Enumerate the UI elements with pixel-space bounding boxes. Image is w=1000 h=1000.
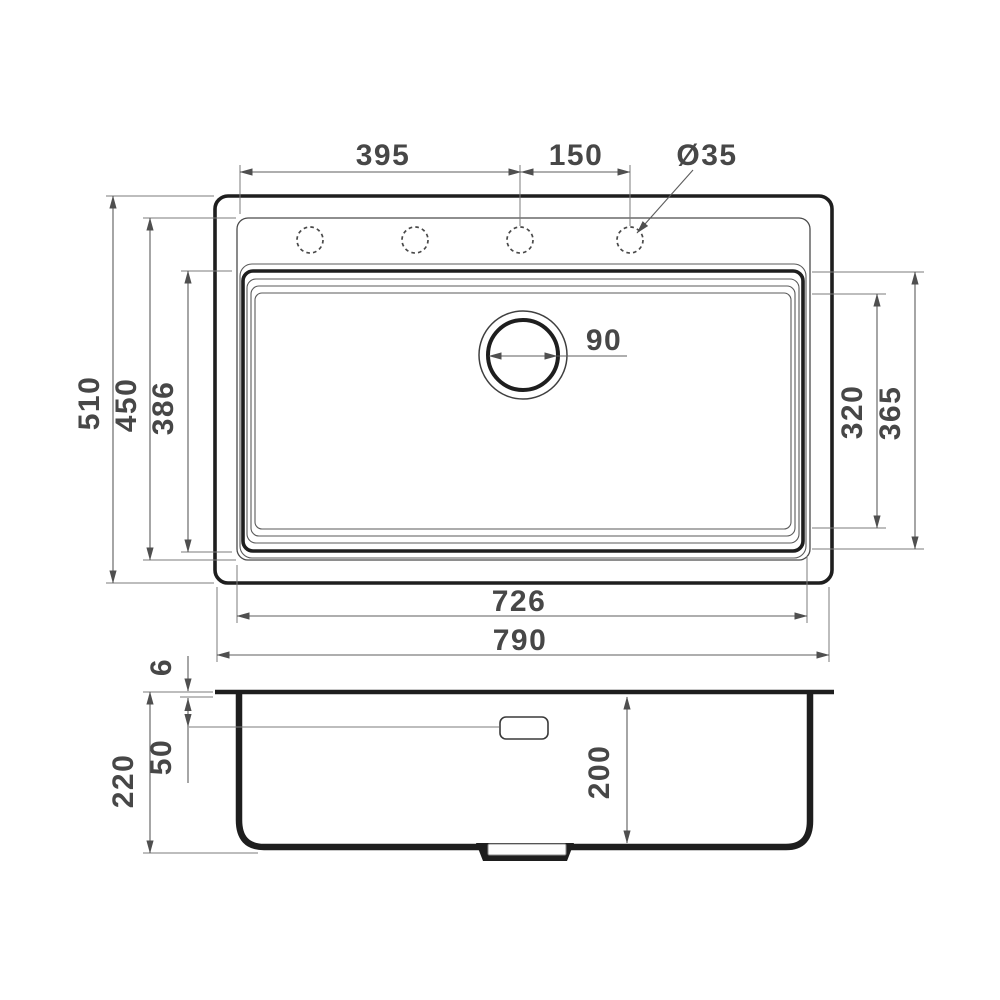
hole-span-label: 395 bbox=[356, 139, 411, 172]
dimensions-top: 395 150 Ø35 bbox=[240, 139, 738, 233]
bowl-outer-width-label: 365 bbox=[874, 386, 907, 441]
overall-height-label: 510 bbox=[73, 376, 106, 431]
bowl-height-label: 386 bbox=[147, 381, 180, 436]
drain-outer-circle bbox=[479, 311, 567, 399]
dimensions-section: 6 50 220 200 bbox=[107, 656, 627, 853]
bowl-step-1 bbox=[240, 264, 806, 558]
faucet-holes bbox=[297, 227, 643, 253]
bowl-outline bbox=[240, 264, 806, 558]
hole-diameter-leader bbox=[637, 170, 693, 233]
section-view bbox=[189, 692, 834, 861]
drain-diameter-label: 90 bbox=[586, 324, 622, 357]
deck-height-label: 450 bbox=[110, 378, 143, 433]
overall-length-label: 790 bbox=[493, 624, 548, 657]
overall-depth-label: 220 bbox=[107, 754, 140, 809]
dimensions-left: 510 450 386 bbox=[73, 196, 236, 583]
section-drain-slot bbox=[488, 844, 566, 855]
drain-inner-circle bbox=[488, 320, 558, 390]
drawing-canvas: 90 395 150 Ø35 510 450 386 320 bbox=[0, 0, 1000, 1000]
top-view: 90 bbox=[215, 196, 832, 583]
faucet-hole-3 bbox=[507, 227, 533, 253]
bowl-main-edge bbox=[243, 271, 803, 551]
hole-pitch-label: 150 bbox=[549, 139, 604, 172]
bowl-length-label: 726 bbox=[492, 585, 547, 618]
dimensions-right: 320 365 bbox=[812, 272, 924, 549]
bowl-inner-width-label: 320 bbox=[836, 385, 869, 440]
bowl-step-3 bbox=[251, 286, 795, 536]
bowl-step-4 bbox=[255, 293, 791, 529]
sink-technical-drawing: 90 395 150 Ø35 510 450 386 320 bbox=[0, 0, 1000, 1000]
bowl-depth-label: 200 bbox=[583, 745, 616, 800]
faucet-hole-2 bbox=[402, 227, 428, 253]
faucet-hole-1 bbox=[297, 227, 323, 253]
drain: 90 bbox=[479, 311, 627, 399]
section-overflow-hole bbox=[500, 717, 548, 739]
rim-thickness-label: 6 bbox=[145, 658, 178, 676]
section-bowl-walls bbox=[239, 693, 810, 847]
hole-diameter-label: Ø35 bbox=[676, 139, 737, 172]
dimensions-bottom: 726 790 bbox=[217, 556, 829, 662]
